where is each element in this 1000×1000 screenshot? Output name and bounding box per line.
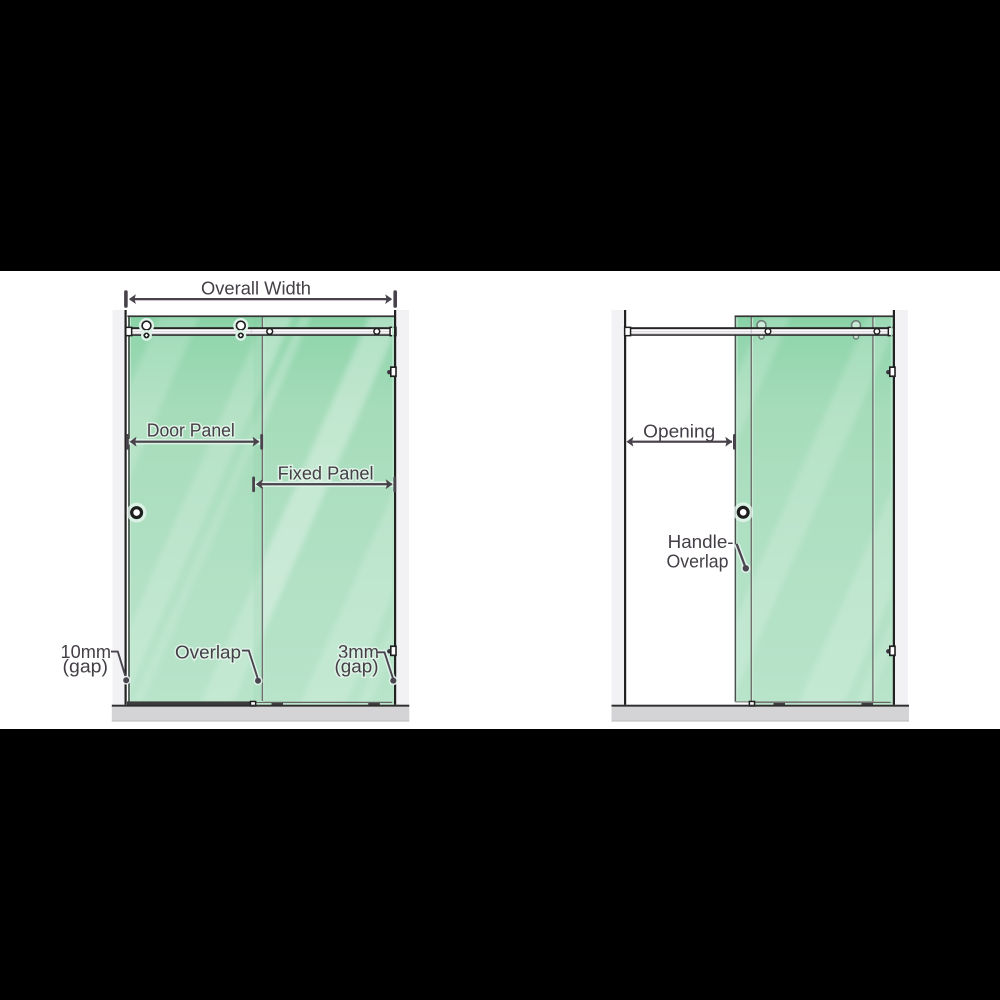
svg-text:Overlap: Overlap bbox=[175, 642, 241, 662]
svg-text:Opening: Opening bbox=[643, 422, 715, 442]
svg-text:(gap): (gap) bbox=[335, 656, 379, 676]
svg-text:Overlap: Overlap bbox=[667, 551, 729, 571]
svg-text:Overall Width: Overall Width bbox=[201, 278, 311, 298]
svg-text:Fixed Panel: Fixed Panel bbox=[278, 464, 374, 484]
svg-text:Door Panel: Door Panel bbox=[147, 420, 235, 440]
svg-text:Handle-: Handle- bbox=[668, 532, 734, 552]
svg-text:(gap): (gap) bbox=[63, 656, 109, 676]
